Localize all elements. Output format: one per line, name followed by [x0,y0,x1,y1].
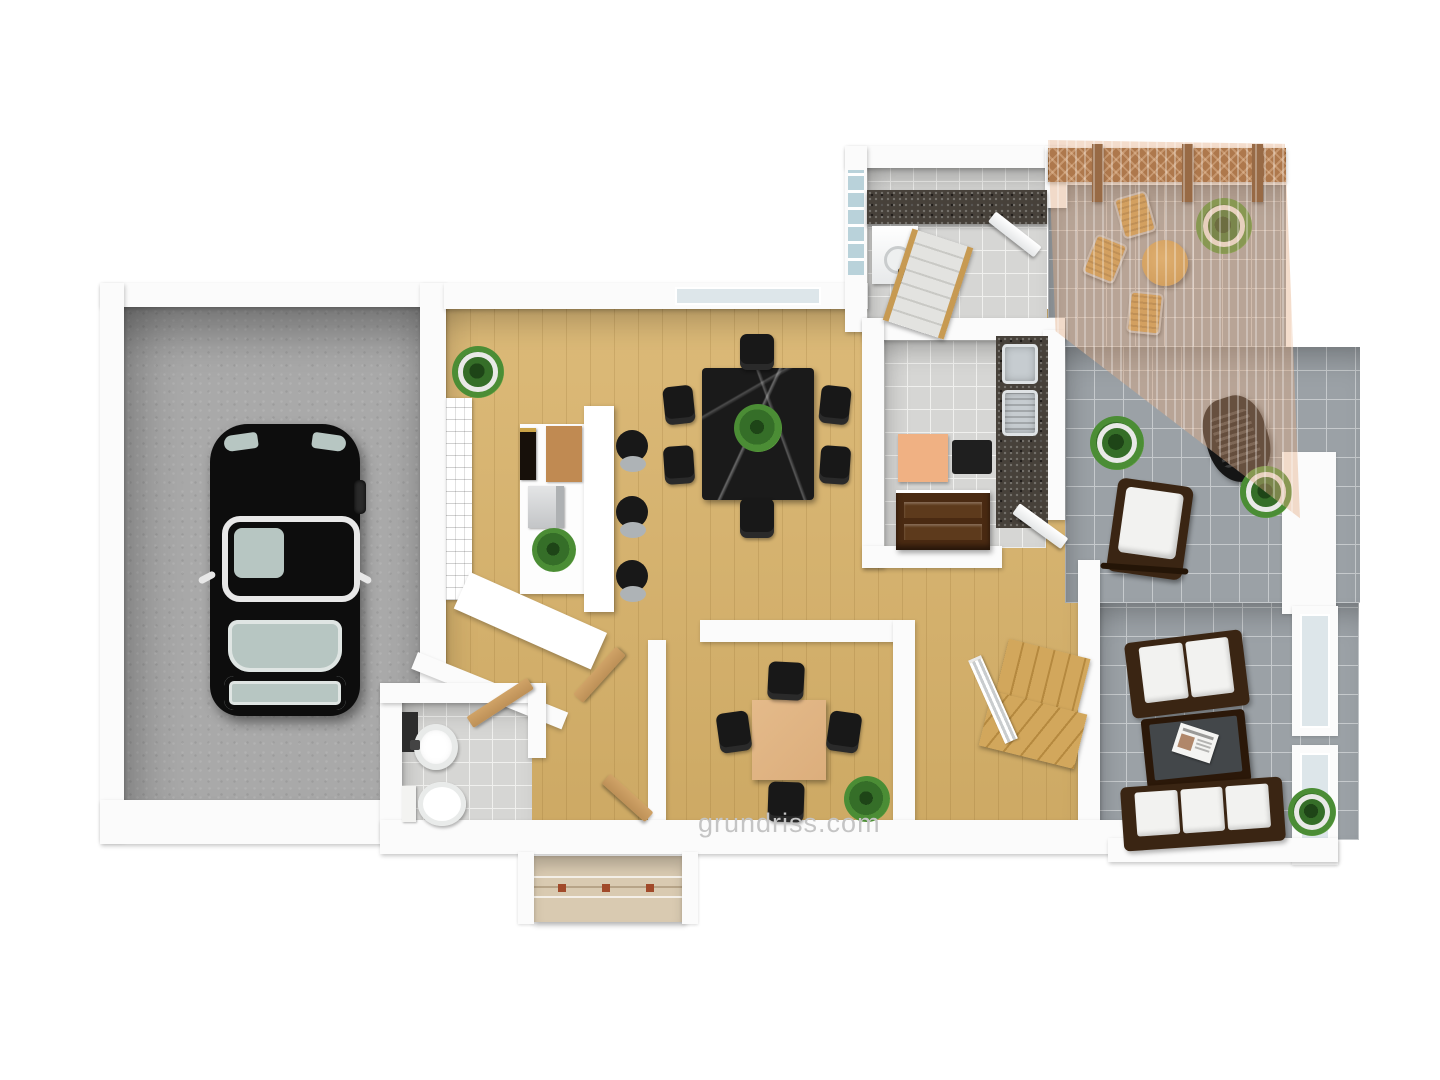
entry-steps [532,856,684,922]
bbq-grate [1209,407,1263,469]
bistro-chair-3 [1126,290,1164,335]
newspaper-photo [1177,733,1195,751]
floor-plan-render: grundriss.com [0,0,1440,1080]
bar-stool-1 [616,430,648,462]
dining-chair-east-2 [819,445,852,485]
entry-step-accents [558,884,566,892]
toilet [418,782,466,826]
terrace-planter-wall [1282,452,1336,614]
study-east-wall [893,620,915,836]
hall-study-divider-wall [648,640,666,826]
study-north-wall [700,620,895,642]
study-chair-north [767,661,805,701]
corner-plant [452,346,504,398]
car [210,424,360,716]
car-windshield [228,620,342,672]
upper-terrace-plant [1196,198,1252,254]
garage-west-wall [100,283,124,840]
car-roof-frame [222,516,360,602]
lounge-sofa-top [1124,629,1250,719]
side-terrace-plant-2 [1240,466,1292,518]
bistro-table [1142,240,1188,286]
lounge-plant [1288,788,1336,836]
sofa-cushions-bottom [1134,783,1271,836]
lounge-sofa-bottom [1120,776,1286,851]
kitchen-west-wall [862,318,884,568]
sink-basin-2-drainer [1002,390,1038,436]
dining-chair-west-1 [662,385,696,426]
trellis-post-2 [1182,144,1193,202]
sideboard-drawer-2 [904,524,982,540]
utility-west-wall [845,146,867,332]
lounge-east-window-frame [1292,606,1338,736]
kitchen-sideboard [896,490,990,550]
entry-step-side-wall-left [518,852,534,924]
bathroom-west-wall [380,683,402,840]
garage-living-divider-wall [420,283,446,685]
dining-table-plant [734,404,782,452]
dining-chair-east-1 [818,385,852,426]
study-chair-east [825,710,862,754]
study-chair-west [715,710,752,754]
coffee-machine [528,486,564,528]
trellis-post-1 [1092,144,1103,202]
bar-plant [532,528,576,572]
laundry-counter [867,190,1047,224]
basin-faucet [410,740,420,750]
stair-room-east-wall [1078,560,1100,840]
study-table [752,700,826,780]
watermark: grundriss.com [698,808,881,839]
living-window [675,287,821,305]
bar-wood-tray [546,426,582,482]
kitchen-dark-appliance [952,440,992,474]
glass-block-window [848,170,864,275]
bar-stool-3 [616,560,648,592]
car-rear-window [234,528,284,578]
wine-rack [446,398,472,600]
living-north-wall [444,283,868,309]
washbasin [414,724,458,770]
bar-counter-top [584,406,614,612]
dining-chair-south [740,498,774,538]
car-hood [224,676,346,710]
trellis-post-3 [1252,144,1263,202]
lounge-east-window [1300,614,1330,728]
side-terrace-plant-1 [1090,416,1144,470]
toilet-cistern [402,786,416,822]
rocking-chair [1106,477,1194,581]
garage-north-wall [100,283,445,307]
trellis-fence [1048,148,1286,182]
car-rear-glass-right [311,432,347,453]
bar-stool-2 [616,496,648,528]
dining-chair-north [740,334,774,370]
sink-basin-1 [1002,344,1038,384]
car-wheel [354,480,366,514]
bar-bottles [520,428,536,480]
dining-chair-west-2 [663,445,696,485]
rocking-chair-cushion [1118,486,1185,559]
entry-step-side-wall-right [682,852,698,924]
bathroom-east-wall [528,683,546,758]
utility-north-wall [845,146,1067,168]
kitchen-peach-cabinet [898,434,948,482]
car-rear-glass-left [223,432,259,453]
garage-south-wall [100,800,400,844]
sofa-cushions [1138,637,1234,704]
entry-step-edges [532,876,684,878]
sideboard-drawer-1 [904,502,982,518]
